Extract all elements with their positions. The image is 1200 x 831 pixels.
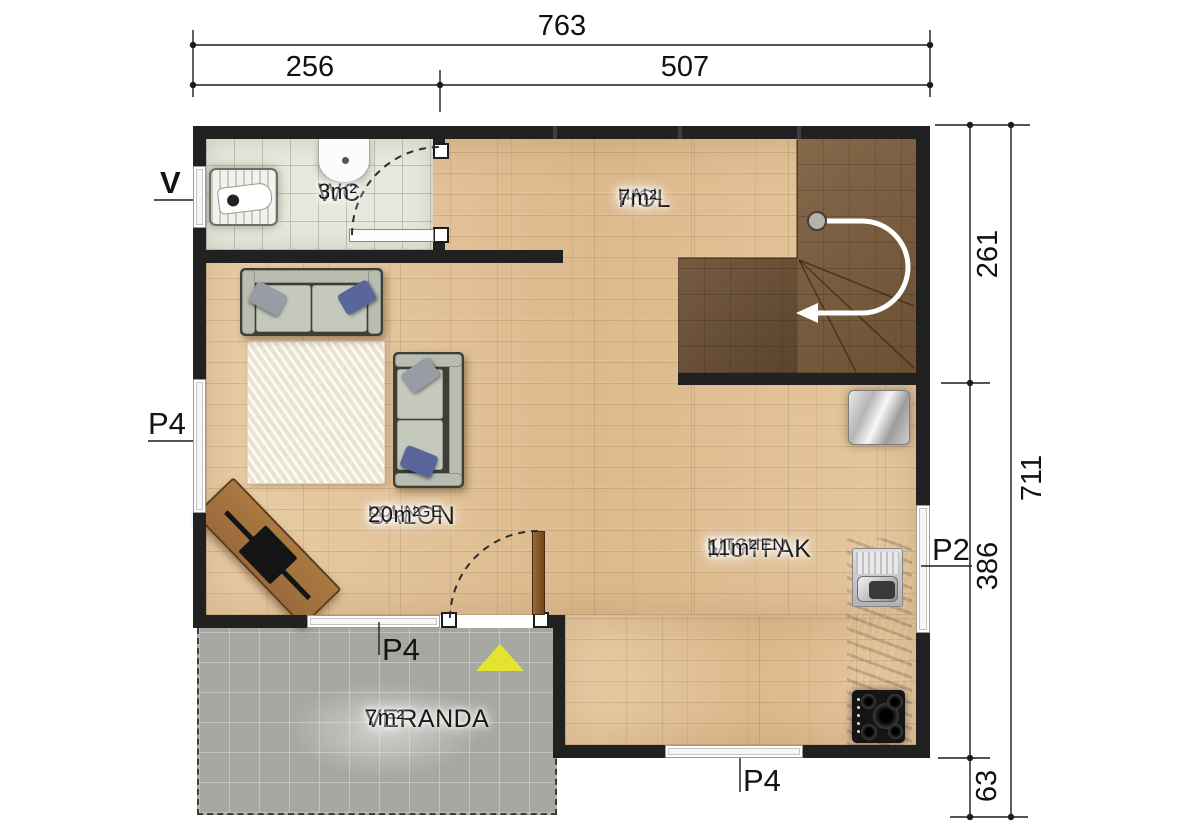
wall-kitchen-bottom-west <box>553 745 665 758</box>
dim-right-middle: 386 <box>972 542 1004 590</box>
wall-left-lower <box>193 513 206 628</box>
marker-door-p4-veranda: P4 <box>382 632 420 668</box>
window-kitchen-bottom <box>665 745 803 758</box>
toilet-drain <box>226 194 239 207</box>
sofa-vertical <box>393 352 464 488</box>
kitchen-sink <box>852 548 903 607</box>
room-area: 3m² <box>318 180 357 204</box>
dim-right-upper: 261 <box>972 230 1004 278</box>
stove-knob <box>857 722 860 725</box>
sofa-horizontal <box>240 268 383 336</box>
stove-burner <box>861 724 877 740</box>
top-dimension-dots <box>190 42 933 88</box>
wall-left-upper <box>193 139 206 167</box>
room-area: 7m² <box>618 186 657 210</box>
stove-burner <box>887 694 903 710</box>
stove-knob <box>857 714 860 717</box>
dim-top-total: 763 <box>538 10 586 42</box>
wall-kitchen-west <box>553 615 565 758</box>
door-hinge <box>433 227 449 243</box>
dim-right-lower: 63 <box>971 770 1003 802</box>
window-p2-right <box>916 505 930 633</box>
wc-sink <box>318 139 370 183</box>
area-rug <box>247 341 385 484</box>
stove-burner <box>888 724 903 739</box>
staircase-upper <box>797 139 916 373</box>
floor-plan-canvas: 763 256 507 261 386 63 711 WC 3m² HOL HA… <box>0 0 1200 831</box>
stove-knob <box>857 730 860 733</box>
wall-wc-bottom <box>193 250 563 263</box>
marker-door-p4-left: P4 <box>148 406 186 442</box>
door-hinge <box>433 143 449 159</box>
stove-knob <box>857 698 860 701</box>
stove-cooktop <box>852 690 905 743</box>
dim-top-left: 256 <box>286 51 334 83</box>
dim-top-right: 507 <box>661 51 709 83</box>
wall-kitchen-bottom-east <box>803 745 930 758</box>
wall-stairs-bottom <box>678 373 916 385</box>
door-hinge <box>441 612 457 628</box>
stove-burner <box>861 694 876 709</box>
wall-right-upper <box>916 139 930 505</box>
room-area: 7m² <box>365 706 404 730</box>
sink-bowl-shadow <box>869 581 895 599</box>
wall-joint <box>678 126 682 139</box>
sink-bowl <box>857 576 898 602</box>
wc-door-leaf <box>349 229 434 242</box>
wall-joint <box>553 126 557 139</box>
marker-window-p2: P2 <box>932 532 970 568</box>
top-dimension-lines <box>193 30 930 112</box>
entrance-door-leaf <box>532 531 545 615</box>
refrigerator <box>848 390 910 445</box>
stove-knob <box>857 706 860 709</box>
right-dimension-dots <box>967 122 1014 820</box>
wall-salon-bottom-west <box>193 615 307 628</box>
squat-toilet <box>209 168 278 226</box>
entrance-arrow-triangle <box>476 644 524 671</box>
sofa-back <box>449 354 462 486</box>
window-salon-bottom <box>307 615 440 628</box>
wall-wc-right-bottom <box>433 243 445 263</box>
toilet-bowl <box>217 182 274 215</box>
sink-drainboard <box>856 552 899 574</box>
dim-right-total: 711 <box>1016 455 1048 501</box>
right-dimension-lines <box>935 125 1030 817</box>
staircase-lower <box>678 258 797 373</box>
room-area: 11m² <box>707 536 758 560</box>
room-area: 20m² <box>368 503 420 527</box>
window-v-left <box>193 166 206 228</box>
marker-window-v: V <box>160 165 181 201</box>
sink-faucet-dot <box>342 157 349 164</box>
window-p4-left <box>193 379 206 513</box>
wall-joint <box>797 126 801 139</box>
wall-top <box>193 126 930 139</box>
wall-right-lower <box>916 633 930 758</box>
marker-door-p4-kitchen: P4 <box>743 763 781 799</box>
